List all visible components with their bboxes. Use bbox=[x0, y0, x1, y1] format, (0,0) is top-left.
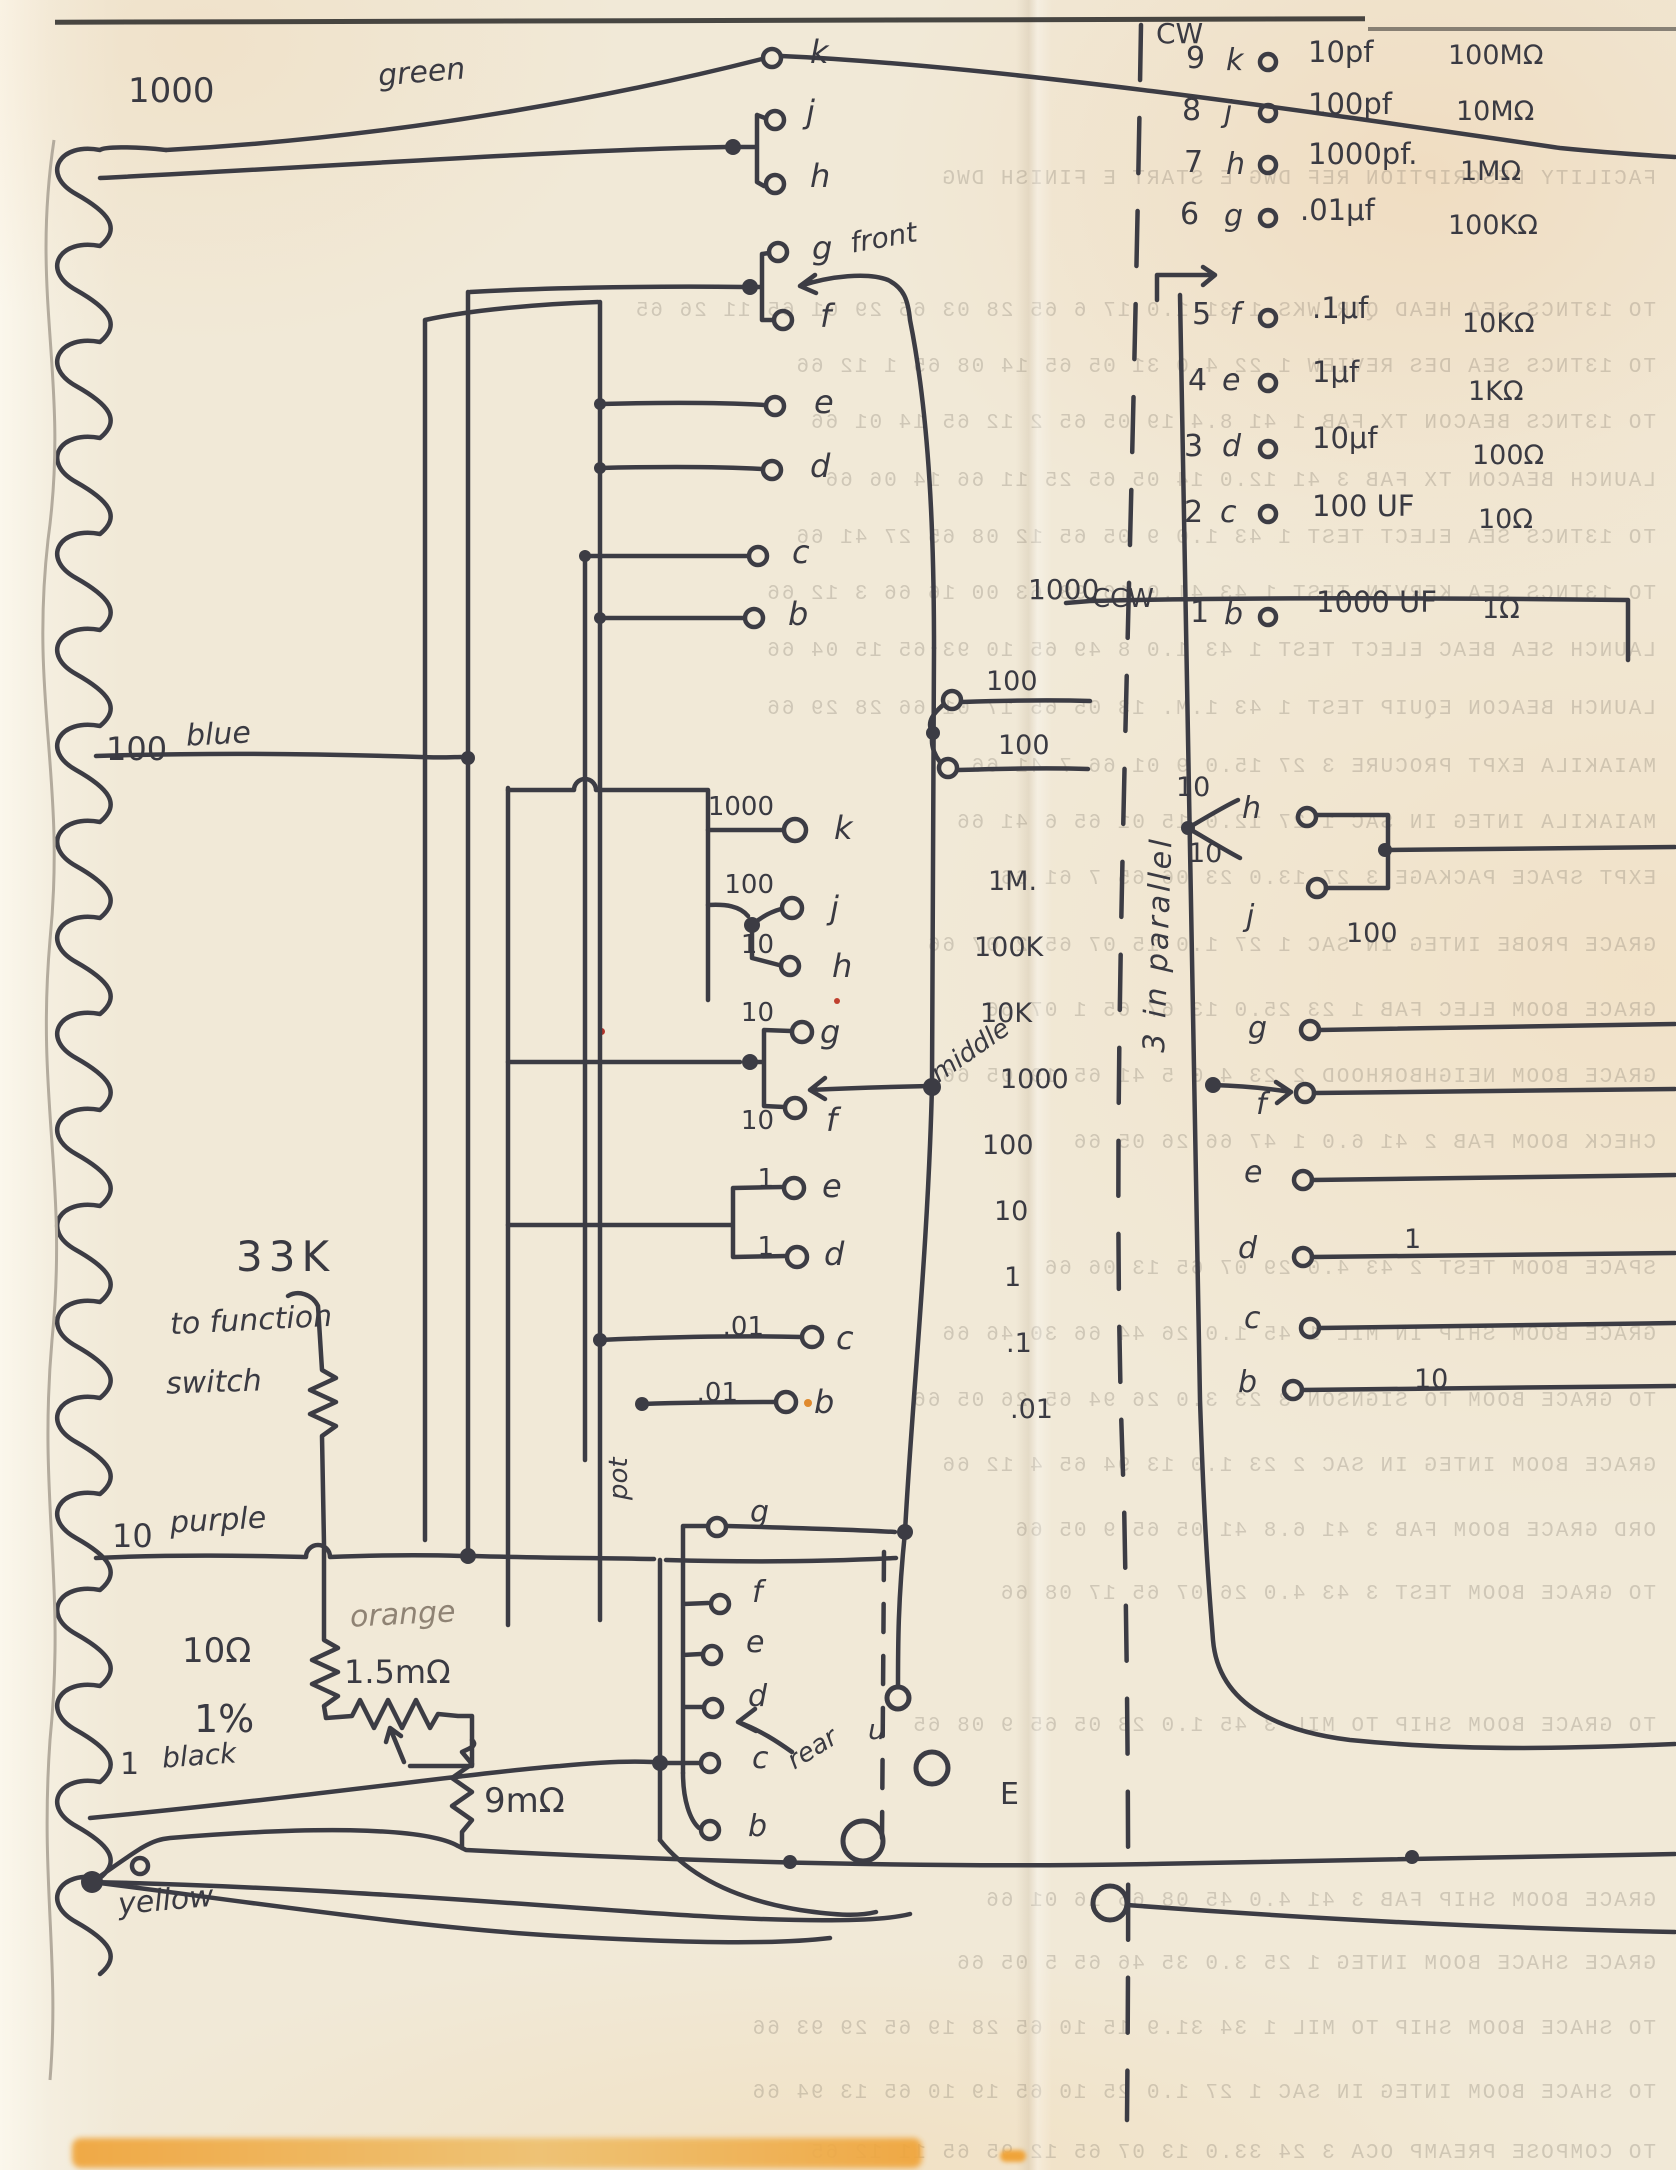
rotary-wafer-1 bbox=[470, 115, 934, 648]
right-switch-value: 100 bbox=[986, 668, 1038, 695]
wire-color-blue-label: blue bbox=[185, 718, 251, 751]
wafer2-letter: h bbox=[832, 950, 852, 982]
right-switch-value: 10 bbox=[1188, 840, 1222, 867]
wire-color-green-label: green bbox=[377, 54, 467, 91]
decade-letter: j bbox=[1224, 98, 1232, 128]
wafer1-contact-letter: d bbox=[810, 450, 830, 482]
decade-letter: h bbox=[1226, 150, 1245, 180]
ladder-value: 1000 bbox=[1000, 1066, 1069, 1093]
ladder-value: 100 bbox=[982, 1132, 1034, 1159]
decade-letter: e bbox=[1222, 366, 1240, 396]
right-switch-letter: f bbox=[1256, 1090, 1267, 1120]
wafer3-letter: d bbox=[748, 1682, 767, 1712]
parallel-note: 3 in parallel bbox=[1140, 836, 1178, 1053]
right-switch-value: 10 bbox=[1176, 774, 1210, 801]
wafer1-contact-letter: g bbox=[812, 232, 832, 264]
decade-position: 9 bbox=[1186, 44, 1205, 74]
wafer2-letter: d bbox=[824, 1238, 844, 1270]
ladder-value: 1 bbox=[1004, 1264, 1021, 1291]
tap-1000-label: 1000 bbox=[128, 74, 215, 108]
wafer2-letter: g bbox=[820, 1016, 840, 1048]
decade-res-value: 100MΩ bbox=[1448, 42, 1543, 69]
wafer2-value: 1000 bbox=[700, 794, 774, 820]
function-note-line1: to function bbox=[169, 1302, 333, 1340]
right-switch-letter: g bbox=[1248, 1014, 1267, 1044]
tap-10-label: 10 bbox=[112, 1520, 153, 1552]
right-switch-value: 1000 bbox=[1028, 576, 1099, 604]
terminal-E-label: E bbox=[1000, 1780, 1019, 1810]
wafer1-contact-letter: b bbox=[788, 598, 808, 630]
wafer2-value: 1 bbox=[700, 1166, 774, 1192]
wafer3-letter: c bbox=[752, 1744, 769, 1774]
wafer1-contact-letter: e bbox=[814, 386, 834, 418]
wafer2-letter: c bbox=[836, 1322, 854, 1354]
decade-position: 5 bbox=[1192, 300, 1211, 330]
ladder-value: .01 bbox=[1010, 1396, 1053, 1423]
wafer2-value: 1 bbox=[700, 1234, 774, 1260]
right-switch-letter: j bbox=[1246, 902, 1254, 932]
wafer2-letter: e bbox=[822, 1170, 842, 1202]
ccw-label: CCW bbox=[1092, 586, 1154, 612]
ladder-value: 10K bbox=[980, 1000, 1032, 1027]
wafer2-value: 10 bbox=[700, 1000, 774, 1026]
schematic-drawing bbox=[0, 0, 1676, 2170]
decade-res-value: 100KΩ bbox=[1448, 212, 1538, 239]
wafer2-value: 10 bbox=[700, 1108, 774, 1134]
decade-cap-value: .1μf bbox=[1312, 294, 1368, 323]
right-switch-letter: e bbox=[1244, 1158, 1262, 1188]
range-resistor-value: 1.5mΩ bbox=[344, 1656, 451, 1688]
bus-wires bbox=[425, 292, 934, 1686]
wafer2-value: 10 bbox=[700, 932, 774, 958]
decade-cap-value: .01μf bbox=[1300, 196, 1375, 225]
right-switch-value: 100 bbox=[998, 732, 1050, 759]
wafer2-value: .01 bbox=[664, 1380, 738, 1406]
tap-1-label: 1 bbox=[120, 1750, 139, 1780]
transformer-coil bbox=[57, 147, 166, 1974]
decade-letter: k bbox=[1226, 46, 1243, 76]
wafer2-letter: j bbox=[830, 892, 839, 924]
decade-letter: g bbox=[1224, 202, 1243, 232]
decade-letter: c bbox=[1220, 498, 1237, 528]
wafer3-letter: b bbox=[748, 1812, 767, 1842]
decade-position: 7 bbox=[1184, 148, 1203, 178]
decade-cap-value: 100 UF bbox=[1312, 492, 1414, 521]
terminal-u-label: u bbox=[868, 1716, 886, 1744]
wire-color-black-label: black bbox=[161, 1739, 237, 1772]
wire-color-purple-label: purple bbox=[169, 1504, 267, 1539]
decade-cap-value: 1μf bbox=[1312, 358, 1359, 387]
precision-resistor-value: 10Ω bbox=[182, 1634, 251, 1668]
wafer1-contact-letter: k bbox=[810, 36, 829, 68]
decade-cap-value: 1000 UF bbox=[1316, 588, 1437, 617]
decade-cap-value: 1000pf. bbox=[1308, 140, 1418, 169]
wafer1-contact-letter: f bbox=[820, 300, 831, 332]
decade-res-value: 1KΩ bbox=[1468, 378, 1524, 405]
decade-position: 4 bbox=[1188, 366, 1207, 396]
ladder-value: 10 bbox=[994, 1198, 1028, 1225]
right-switch-letter: d bbox=[1238, 1234, 1257, 1264]
rotary-wafer-3 bbox=[660, 1526, 895, 1915]
wire-color-yellow-label: yellow bbox=[117, 1882, 215, 1920]
wafer2-value: 100 bbox=[700, 872, 774, 898]
decade-letter: d bbox=[1222, 432, 1241, 462]
shunt-resistor-value: 9mΩ bbox=[484, 1784, 565, 1818]
decade-position: 6 bbox=[1180, 200, 1199, 230]
decade-res-value: 1MΩ bbox=[1460, 158, 1521, 185]
wafer3-letter: e bbox=[746, 1628, 764, 1658]
decade-position: 1 bbox=[1190, 598, 1209, 628]
wafer1-contact-letter: c bbox=[792, 536, 810, 568]
decade-res-value: 10MΩ bbox=[1456, 98, 1534, 125]
wafer3-letter: f bbox=[752, 1578, 763, 1608]
right-switch-value: 10 bbox=[1414, 1366, 1448, 1393]
resistor-chain bbox=[288, 1293, 474, 1848]
scanned-schematic-page: FACILITY DESCRIPTION REF DWG E START E F… bbox=[0, 0, 1676, 2170]
ladder-value: .1 bbox=[1006, 1330, 1032, 1357]
ladder-value: 100K bbox=[974, 934, 1043, 961]
decade-position: 2 bbox=[1184, 498, 1203, 528]
decade-res-value: 100Ω bbox=[1472, 442, 1544, 469]
decade-position: 8 bbox=[1182, 96, 1201, 126]
precision-tolerance: 1% bbox=[194, 1700, 254, 1738]
function-note-line2: switch bbox=[166, 1366, 263, 1399]
wafer2-letter: f bbox=[826, 1104, 837, 1136]
decade-cap-value: 10μf bbox=[1312, 424, 1378, 453]
right-switch-letter: b bbox=[1238, 1368, 1257, 1398]
right-switch-value: 100 bbox=[1346, 920, 1398, 947]
decade-position: 3 bbox=[1184, 432, 1203, 462]
decade-letter: b bbox=[1224, 600, 1243, 630]
decade-res-value: 10KΩ bbox=[1462, 310, 1535, 337]
wafer1-contact-letter: j bbox=[806, 96, 815, 128]
right-switch-value: 1 bbox=[1404, 1226, 1421, 1253]
right-switch-letter: c bbox=[1244, 1304, 1261, 1334]
pencil-margin-doodle bbox=[43, 140, 57, 2080]
wafer2-letter: k bbox=[834, 812, 853, 844]
wafer3-letter: g bbox=[750, 1498, 769, 1528]
right-switch-letter: h bbox=[1242, 794, 1261, 824]
function-resistor-value: 33K bbox=[236, 1236, 335, 1278]
decade-cap-value: 100pf bbox=[1308, 90, 1392, 119]
decade-cap-value: 10pf bbox=[1308, 38, 1374, 67]
wafer1-contact-letter: h bbox=[810, 160, 830, 192]
ladder-value: 1M. bbox=[988, 868, 1037, 895]
decade-res-value: 1Ω bbox=[1482, 596, 1520, 623]
wire-color-orange-label: orange bbox=[349, 1597, 456, 1632]
wire-green-top bbox=[100, 56, 1675, 178]
wafer2-letter: b bbox=[814, 1386, 834, 1418]
tap-100-label: 100 bbox=[106, 733, 167, 765]
decade-letter: f bbox=[1230, 300, 1241, 330]
wafer2-value: .01 bbox=[690, 1314, 764, 1340]
decade-res-value: 10Ω bbox=[1478, 506, 1533, 533]
pot-label: pot bbox=[606, 1457, 632, 1500]
